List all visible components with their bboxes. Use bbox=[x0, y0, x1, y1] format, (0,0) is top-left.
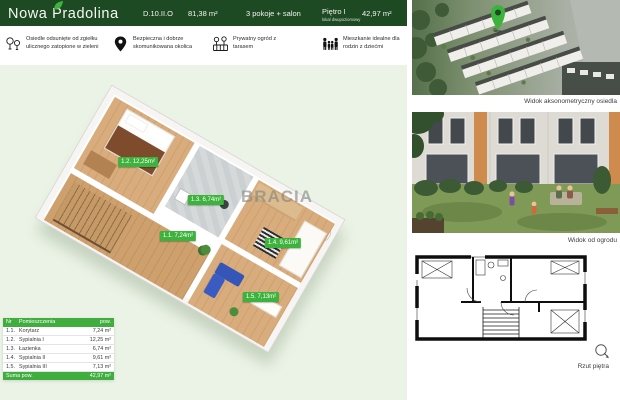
row-area: 6,74 m² bbox=[83, 346, 111, 352]
total-value: 42,97 m² bbox=[83, 373, 111, 379]
row-area: 7,24 m² bbox=[83, 328, 111, 334]
table-row: 1.4. Sypialnia II 9,61 m² bbox=[3, 354, 114, 363]
room-area-label: 1.3. 6,74m² bbox=[188, 195, 224, 205]
watermark: BRACIA bbox=[241, 187, 313, 207]
row-name: Sypialnia III bbox=[19, 364, 83, 370]
map-pin-icon bbox=[112, 35, 129, 52]
feature-text: Osiedle odsunięte od zgiełku ulicznego z… bbox=[26, 36, 110, 51]
table-header-row: Nr Pomieszczenia pow. bbox=[3, 318, 114, 327]
col-header-nr: Nr bbox=[6, 319, 19, 325]
row-name: Sypialnia II bbox=[19, 355, 83, 361]
room-area-label: 1.5. 7,13m² bbox=[243, 292, 279, 302]
row-area: 7,13 m² bbox=[83, 364, 111, 370]
estate-aerial-image bbox=[412, 0, 620, 95]
caption-garden: Widok od ogrodu bbox=[568, 237, 617, 244]
plant bbox=[228, 306, 240, 318]
col-header-name: Pomieszczenia bbox=[19, 319, 83, 325]
row-name: Sypialnia I bbox=[19, 337, 83, 343]
feature-garden: Prywatny ogród z tarasem bbox=[212, 35, 283, 52]
bed bbox=[279, 220, 328, 278]
unit-floor-note: lokal dwupoziomowy bbox=[322, 17, 360, 22]
feature-greenery: Osiedle odsunięte od zgiełku ulicznego z… bbox=[5, 35, 110, 52]
garden-icon bbox=[212, 35, 229, 52]
row-name: Łazienka bbox=[19, 346, 83, 352]
caption-aerial: Widok aksonometryczny osiedla bbox=[524, 98, 617, 105]
feature-location: Bezpieczna i dobrze skomunikowana okolic… bbox=[112, 35, 197, 52]
table-total-row: Suma pow. 42,97 m² bbox=[3, 372, 114, 381]
total-label: Suma pow. bbox=[6, 373, 83, 379]
plant bbox=[199, 243, 213, 257]
col-header-area: pow. bbox=[83, 319, 111, 325]
room-area-table: Nr Pomieszczenia pow. 1.1. Korytarz 7,24… bbox=[3, 318, 114, 380]
feature-strip: Osiedle odsunięte od zgiełku ulicznego z… bbox=[0, 26, 407, 65]
feature-text: Prywatny ogród z tarasem bbox=[233, 36, 283, 51]
feature-text: Mieszkanie idealne dla rodzin z dziećmi bbox=[343, 36, 405, 51]
row-nr: 1.1. bbox=[6, 328, 19, 334]
unit-id: D.10.II.O bbox=[143, 9, 173, 18]
feature-text: Bezpieczna i dobrze skomunikowana okolic… bbox=[133, 36, 197, 51]
trees-icon bbox=[5, 35, 22, 52]
feature-family: Mieszkanie idealne dla rodzin z dziećmi bbox=[322, 35, 405, 52]
floorplan-3d-render bbox=[36, 86, 344, 352]
room-area-label: 1.4. 9,61m² bbox=[265, 238, 301, 248]
compass-icon bbox=[593, 343, 611, 361]
row-nr: 1.4. bbox=[6, 355, 19, 361]
room-area-label: 1.2. 12,25m² bbox=[118, 157, 158, 167]
leaf-icon bbox=[52, 0, 65, 15]
row-name: Korytarz bbox=[19, 328, 83, 334]
row-area: 12,25 m² bbox=[83, 337, 111, 343]
row-nr: 1.3. bbox=[6, 346, 19, 352]
unit-floor: Piętro I bbox=[322, 7, 346, 16]
desk bbox=[83, 150, 117, 179]
sofa bbox=[203, 273, 225, 299]
family-icon bbox=[322, 35, 339, 52]
table-row: 1.5. Sypialnia III 7,13 m² bbox=[3, 363, 114, 372]
table-row: 1.2. Sypialnia I 12,25 m² bbox=[3, 336, 114, 345]
unit-rooms: 3 pokoje + salon bbox=[246, 9, 301, 18]
floorplan-3d-panel: BRACIA 1.2. 12,25m² 1.3. 6,74m² 1.1. 7,2… bbox=[0, 65, 407, 400]
table-row: 1.1. Korytarz 7,24 m² bbox=[3, 327, 114, 336]
header-bar: Nowa Pradolina D.10.II.O 81,38 m² 3 poko… bbox=[0, 0, 407, 26]
table-row: 1.3. Łazienka 6,74 m² bbox=[3, 345, 114, 354]
row-area: 9,61 m² bbox=[83, 355, 111, 361]
unit-total-area: 81,38 m² bbox=[188, 9, 218, 18]
row-nr: 1.2. bbox=[6, 337, 19, 343]
garden-view-image bbox=[412, 112, 620, 233]
floorplan-2d-drawing bbox=[413, 252, 589, 344]
row-nr: 1.5. bbox=[6, 364, 19, 370]
room-area-label: 1.1. 7,24m² bbox=[160, 231, 196, 241]
unit-level-area: 42,97 m² bbox=[362, 9, 392, 18]
caption-plan: Rzut piętra bbox=[578, 363, 609, 370]
